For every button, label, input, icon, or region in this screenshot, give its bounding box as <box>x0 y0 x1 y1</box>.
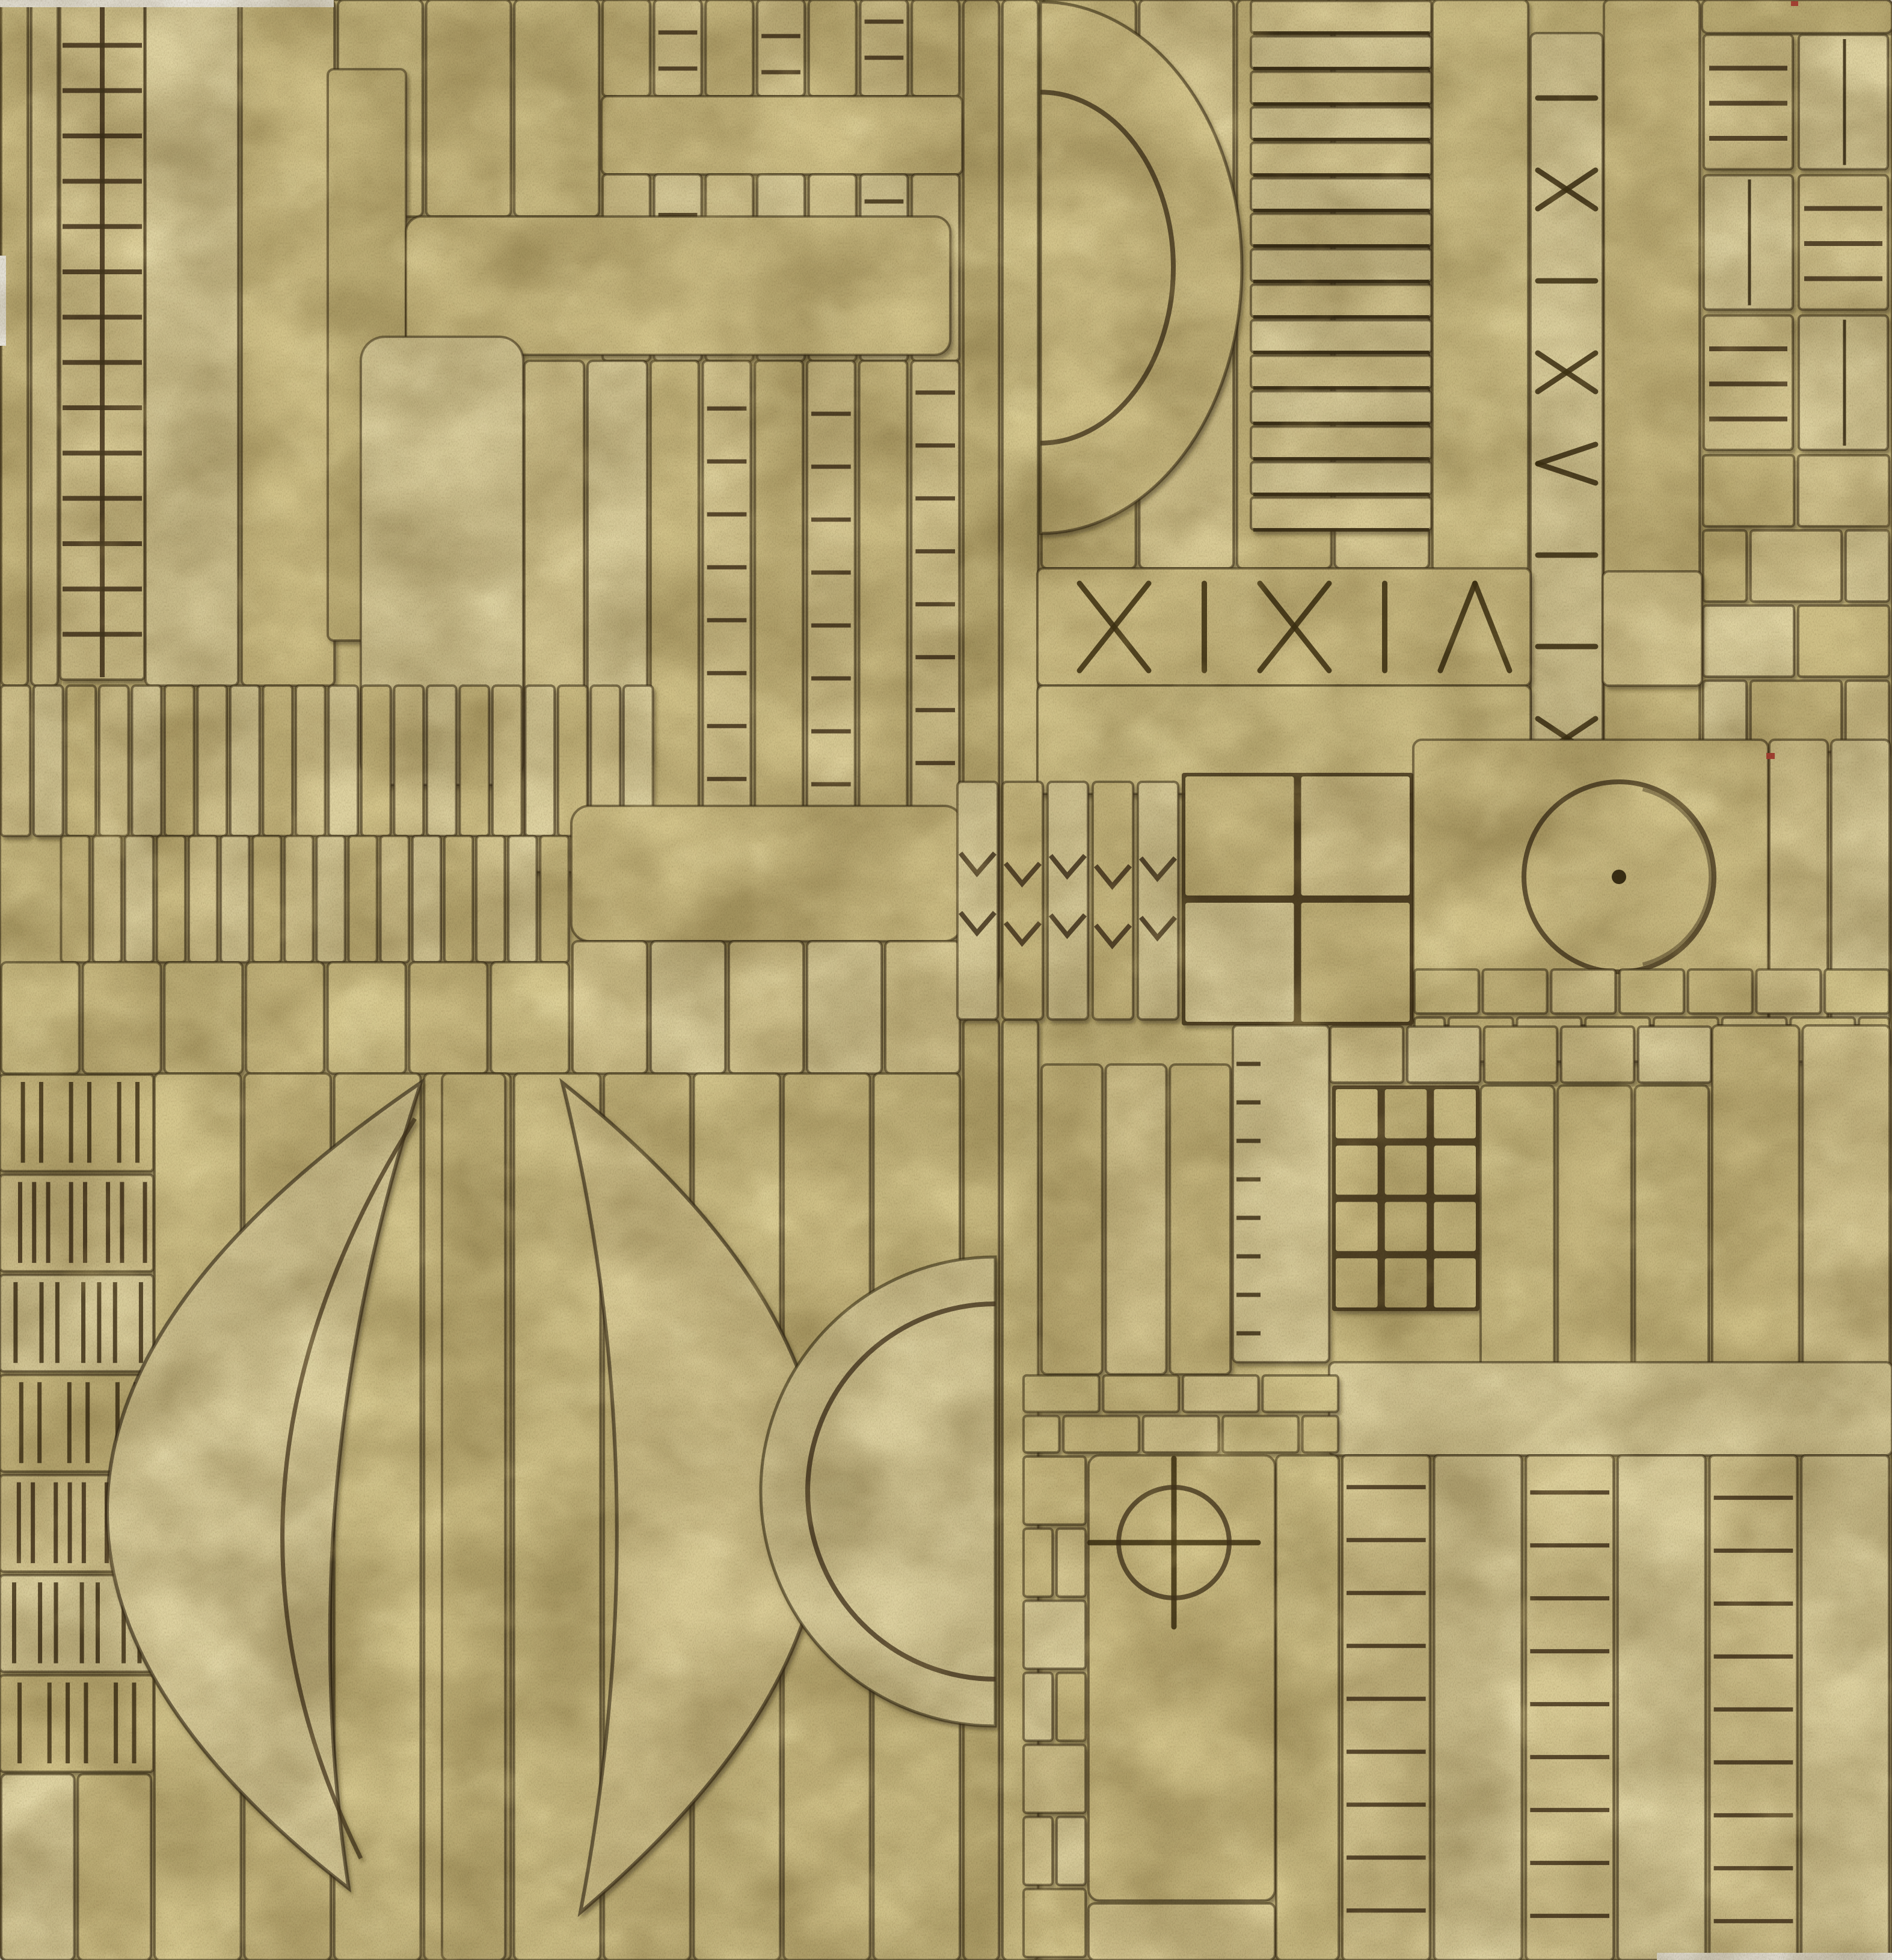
grain-speckle-overlay <box>0 0 1892 1960</box>
wood-relief-artwork <box>0 0 1892 1960</box>
artwork-photo <box>0 0 1892 1960</box>
